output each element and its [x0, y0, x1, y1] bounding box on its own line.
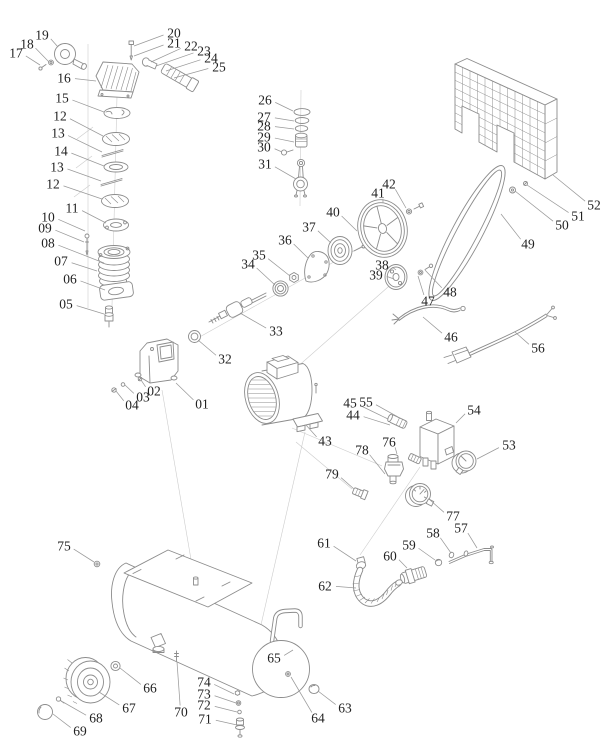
end-cap	[253, 641, 310, 698]
parts-diagram-page: 0102030405060708091011121314131215161718…	[0, 0, 615, 755]
part-label-68: 68	[89, 711, 103, 726]
part-label-39: 39	[369, 268, 383, 283]
leader-line-04	[116, 391, 124, 401]
leader-line-07	[72, 263, 97, 271]
axle-bolt	[56, 697, 64, 703]
wheel	[64, 658, 111, 704]
part-label-07: 07	[54, 254, 68, 269]
leader-line-03	[125, 385, 134, 393]
leader-line-79	[341, 478, 354, 489]
gauge-77	[406, 484, 434, 507]
hub-cap	[38, 705, 53, 720]
leader-line-68	[63, 702, 86, 715]
valve-plate-stack	[101, 108, 130, 232]
flywheel-washer-bolt	[406, 203, 423, 214]
leader-line-58	[440, 538, 451, 553]
piston-pin	[281, 150, 293, 155]
leader-line-53	[477, 448, 499, 459]
crankshaft	[209, 293, 266, 323]
belt-guard	[455, 59, 557, 180]
gauge-53	[452, 451, 476, 474]
unloader-fitting	[387, 413, 408, 428]
part-label-59: 59	[402, 538, 416, 553]
leader-line-63	[318, 691, 336, 705]
part-label-19: 19	[35, 28, 49, 43]
part-label-12: 12	[46, 177, 60, 192]
intake-elbow	[142, 58, 157, 69]
discharge-hose	[353, 557, 404, 604]
part-label-13: 13	[51, 126, 65, 141]
piston-rings	[294, 109, 310, 132]
leader-line-32	[198, 340, 216, 355]
part-label-48: 48	[443, 285, 457, 300]
part-label-26: 26	[258, 93, 272, 108]
leader-line-36	[294, 244, 308, 258]
leader-line-77	[430, 500, 444, 512]
piston	[295, 133, 307, 147]
part-label-61: 61	[317, 536, 331, 551]
pressure-switch	[420, 411, 454, 469]
leader-line-11	[82, 211, 106, 223]
tank-handle	[272, 611, 301, 642]
part-label-70: 70	[174, 705, 188, 720]
leader-line-40	[342, 216, 357, 231]
air-compressor-exploded-diagram: 0102030405060708091011121314131215161718…	[0, 0, 615, 755]
leader-line-59	[419, 548, 435, 560]
leader-line-02	[141, 380, 146, 387]
check-valve	[385, 455, 404, 484]
part-label-60: 60	[383, 549, 397, 564]
part-label-12: 12	[53, 109, 67, 124]
part-label-50: 50	[555, 218, 569, 233]
cylinder-stud	[85, 234, 89, 255]
leader-line-35	[268, 259, 290, 276]
leader-line-01	[176, 383, 193, 400]
pulley-washer-bolt	[418, 264, 433, 275]
part-label-49: 49	[521, 237, 535, 252]
part-label-58: 58	[426, 526, 440, 541]
part-label-76: 76	[382, 435, 396, 450]
leader-line-31	[275, 167, 296, 179]
part-label-22: 22	[184, 39, 198, 54]
mount-bolt-75	[94, 561, 100, 567]
part-label-01: 01	[195, 397, 209, 412]
part-label-21: 21	[167, 36, 181, 51]
part-label-65: 65	[267, 651, 281, 666]
part-label-36: 36	[278, 233, 292, 248]
leader-line-57	[468, 533, 477, 548]
part-label-56: 56	[531, 341, 545, 356]
part-label-75: 75	[57, 539, 71, 554]
leader-line-78	[370, 455, 385, 474]
leader-line-49	[501, 214, 521, 239]
head-bolt	[129, 41, 134, 60]
part-label-69: 69	[73, 724, 87, 739]
part-label-16: 16	[57, 71, 71, 86]
part-label-31: 31	[258, 157, 272, 172]
leader-line-33	[240, 313, 266, 328]
part-label-13: 13	[50, 160, 64, 175]
part-label-42: 42	[382, 177, 396, 192]
part-label-79: 79	[325, 467, 339, 482]
leader-line-34	[257, 268, 275, 285]
leader-line-10	[58, 219, 85, 231]
part-label-10: 10	[41, 210, 55, 225]
cylinder-head	[96, 62, 139, 98]
leader-line-29	[275, 138, 294, 142]
cover-gasket	[305, 251, 330, 282]
part-label-14: 14	[54, 144, 68, 159]
part-label-45: 45	[343, 396, 357, 411]
leader-line-75	[74, 549, 94, 562]
leader-line-52	[553, 175, 585, 201]
drain-cock-assembly	[235, 691, 244, 738]
part-label-33: 33	[269, 324, 283, 339]
leader-line-12	[64, 186, 102, 199]
leader-line-54	[456, 414, 465, 423]
leader-line-20	[134, 35, 164, 46]
crankcase	[135, 339, 178, 383]
part-label-51: 51	[571, 209, 585, 224]
connecting-rod	[294, 159, 308, 197]
part-label-40: 40	[326, 205, 340, 220]
leader-line-60	[399, 560, 407, 568]
part-label-71: 71	[198, 712, 212, 727]
leader-line-50	[515, 191, 553, 221]
part-label-06: 06	[63, 272, 77, 287]
leader-line-19	[51, 39, 58, 47]
leader-line-61	[334, 546, 356, 561]
leader-line-37	[318, 231, 331, 243]
part-label-54: 54	[467, 403, 481, 418]
leader-line-56	[515, 332, 529, 344]
relief-fitting	[352, 486, 368, 500]
motor	[239, 356, 323, 432]
part-label-32: 32	[218, 352, 232, 367]
part-label-77: 77	[446, 509, 460, 524]
leader-line-17	[26, 56, 40, 65]
part-label-67: 67	[122, 701, 136, 716]
leader-line-30	[275, 149, 282, 152]
leader-line-72	[215, 706, 237, 712]
drain-plug	[309, 684, 319, 693]
cylinder	[98, 246, 130, 287]
leader-line-27	[275, 118, 294, 121]
breather-fitting	[105, 306, 113, 327]
part-label-15: 15	[55, 91, 69, 106]
part-label-62: 62	[318, 579, 332, 594]
leader-line-12	[70, 119, 103, 136]
leader-line-09	[55, 230, 84, 242]
part-label-63: 63	[338, 701, 352, 716]
leader-line-14	[71, 153, 104, 166]
part-label-74: 74	[197, 675, 211, 690]
wheel-washer	[111, 661, 120, 670]
part-label-64: 64	[311, 711, 325, 726]
part-label-37: 37	[302, 220, 316, 235]
part-label-47: 47	[421, 294, 435, 309]
leader-line-73	[215, 696, 236, 703]
part-label-66: 66	[143, 681, 157, 696]
part-label-04: 04	[125, 398, 139, 413]
guard-screws	[510, 182, 528, 194]
v-belt	[418, 159, 516, 307]
leader-line-26	[275, 102, 293, 111]
part-label-46: 46	[444, 330, 458, 345]
part-label-11: 11	[66, 201, 79, 216]
leader-line-47	[418, 276, 424, 295]
part-label-25: 25	[212, 60, 226, 75]
leader-line-46	[423, 317, 442, 333]
steel-pipe	[448, 546, 493, 564]
filter-screw-washer	[39, 60, 53, 70]
part-label-52: 52	[587, 198, 601, 213]
leader-line-51	[527, 185, 569, 213]
part-label-30: 30	[257, 140, 271, 155]
air-filter	[55, 44, 88, 71]
leader-line-16	[75, 79, 96, 81]
leader-line-42	[395, 189, 406, 208]
part-label-78: 78	[355, 443, 369, 458]
leader-line-13	[68, 136, 102, 152]
ball-fitting	[435, 559, 441, 565]
leader-line-70	[177, 662, 180, 706]
leader-line-69	[53, 714, 71, 728]
leader-line-28	[275, 127, 294, 129]
bearing	[273, 281, 288, 296]
leader-line-13	[67, 169, 101, 181]
part-label-35: 35	[252, 248, 266, 263]
leader-line-24	[166, 60, 200, 71]
elbow-fitting	[399, 565, 428, 586]
part-label-08: 08	[41, 236, 55, 251]
leader-line-18	[36, 48, 49, 62]
construction-lines	[74, 44, 420, 638]
bearing-cover	[328, 237, 365, 265]
part-label-53: 53	[502, 438, 516, 453]
part-label-55: 55	[359, 395, 373, 410]
leader-line-05	[77, 306, 104, 314]
leader-line-71	[216, 720, 237, 725]
part-label-05: 05	[59, 297, 73, 312]
part-label-43: 43	[318, 434, 332, 449]
leader-line-66	[120, 668, 141, 684]
leader-line-21	[134, 45, 164, 56]
shaft-nut	[290, 273, 299, 283]
part-label-18: 18	[20, 37, 34, 52]
